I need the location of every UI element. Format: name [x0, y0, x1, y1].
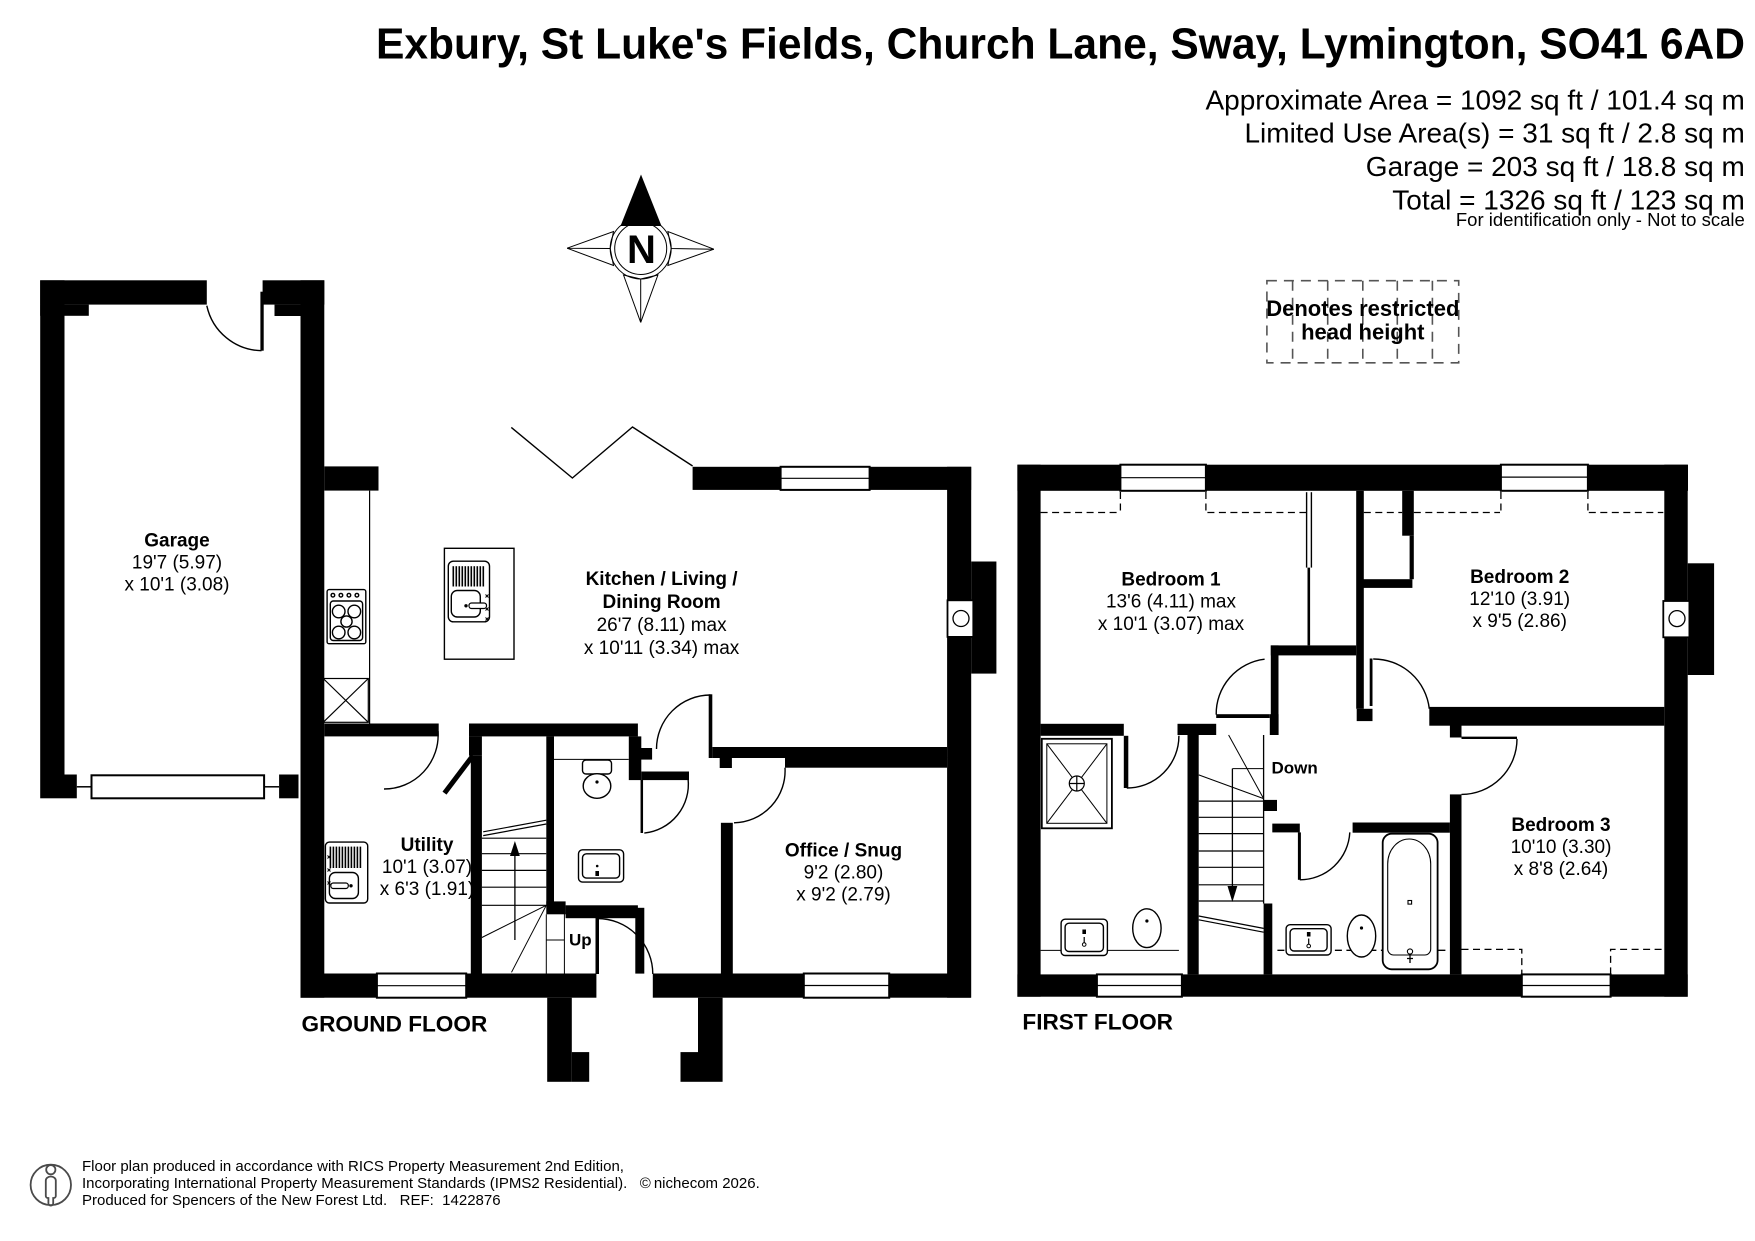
svg-text:13'6 (4.11) max: 13'6 (4.11) max [1106, 592, 1237, 613]
svg-text:Office / Snug: Office / Snug [785, 840, 902, 861]
svg-text:Garage: Garage [144, 531, 209, 552]
svg-text:x 8'8 (2.64): x 8'8 (2.64) [1514, 859, 1608, 880]
svg-text:Bedroom 1: Bedroom 1 [1121, 570, 1221, 591]
svg-text:12'10 (3.91): 12'10 (3.91) [1469, 589, 1570, 610]
svg-text:GROUND FLOOR: GROUND FLOOR [302, 1012, 488, 1037]
svg-text:Approximate Area = 1092 sq ft: Approximate Area = 1092 sq ft / 101.4 sq… [1205, 84, 1744, 115]
svg-text:10'1 (3.07): 10'1 (3.07) [382, 857, 472, 878]
svg-text:19'7 (5.97): 19'7 (5.97) [132, 553, 222, 574]
svg-text:Incorporating International Pr: Incorporating International Property Mea… [82, 1175, 760, 1192]
svg-text:Garage = 203 sq ft / 18.8 sq m: Garage = 203 sq ft / 18.8 sq m [1366, 151, 1745, 182]
svg-text:x 9'5 (2.86): x 9'5 (2.86) [1472, 611, 1566, 632]
svg-text:x 10'1 (3.07) max: x 10'1 (3.07) max [1098, 614, 1245, 635]
svg-text:x 10'1 (3.08): x 10'1 (3.08) [124, 575, 229, 596]
svg-text:Bedroom 3: Bedroom 3 [1511, 815, 1610, 836]
svg-text:Exbury, St Luke's Fields, Chur: Exbury, St Luke's Fields, Church Lane, S… [376, 20, 1745, 69]
svg-text:For identification only - Not: For identification only - Not to scale [1456, 209, 1745, 230]
svg-text:Limited Use Area(s) = 31 sq ft: Limited Use Area(s) = 31 sq ft / 2.8 sq … [1244, 118, 1744, 149]
svg-text:x 6'3 (1.91): x 6'3 (1.91) [380, 879, 474, 900]
svg-text:Bedroom 2: Bedroom 2 [1470, 567, 1569, 588]
svg-text:Down: Down [1272, 759, 1318, 778]
svg-text:Floor plan produced in accorda: Floor plan produced in accordance with R… [82, 1158, 624, 1175]
svg-text:Denotes restricted: Denotes restricted [1266, 296, 1459, 321]
svg-text:26'7 (8.11) max: 26'7 (8.11) max [597, 615, 728, 636]
svg-text:Produced for Spencers of the N: Produced for Spencers of the New Forest … [82, 1192, 501, 1209]
svg-text:FIRST FLOOR: FIRST FLOOR [1022, 1010, 1173, 1035]
svg-text:Up: Up [569, 931, 592, 950]
svg-text:x 10'11 (3.34) max: x 10'11 (3.34) max [584, 638, 740, 659]
svg-text:10'10 (3.30): 10'10 (3.30) [1511, 837, 1612, 858]
svg-text:Utility: Utility [401, 835, 454, 856]
svg-text:N: N [627, 228, 656, 272]
svg-text:x 9'2 (2.79): x 9'2 (2.79) [796, 884, 890, 905]
svg-text:head height: head height [1301, 320, 1425, 345]
svg-text:Dining Room: Dining Room [602, 592, 720, 613]
svg-text:9'2 (2.80): 9'2 (2.80) [804, 862, 884, 883]
svg-text:Kitchen / Living /: Kitchen / Living / [586, 569, 739, 590]
